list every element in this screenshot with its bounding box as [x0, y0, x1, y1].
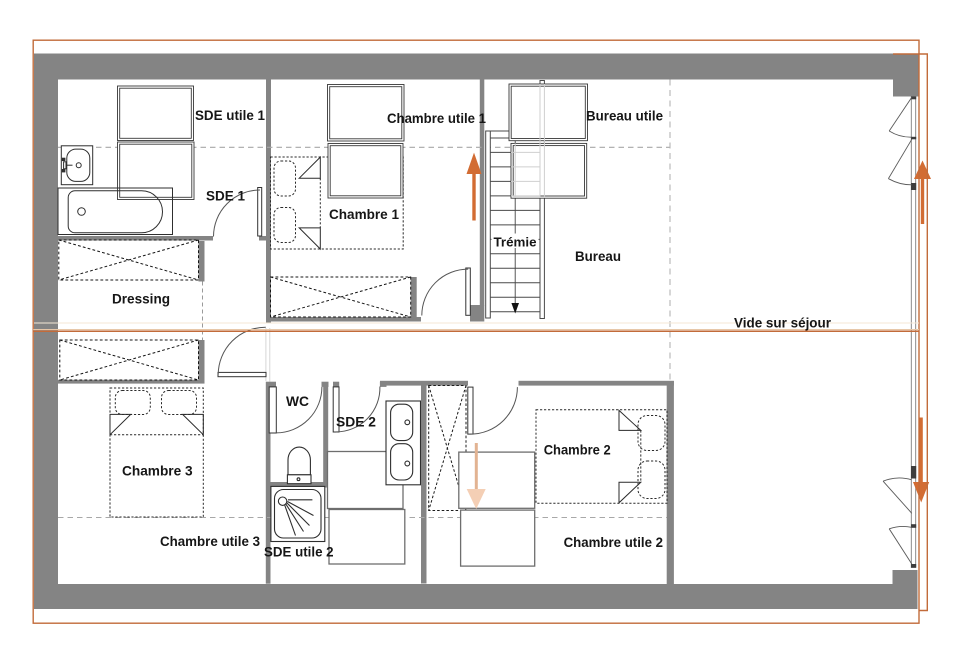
svg-text:Chambre 2: Chambre 2 [544, 443, 611, 458]
svg-text:Chambre 3: Chambre 3 [122, 464, 193, 479]
svg-text:SDE 1: SDE 1 [206, 189, 245, 204]
svg-text:Chambre 1: Chambre 1 [329, 207, 399, 222]
svg-text:Bureau utile: Bureau utile [586, 109, 663, 124]
svg-text:SDE 2: SDE 2 [336, 415, 376, 430]
svg-text:Chambre utile 3: Chambre utile 3 [160, 534, 260, 549]
svg-text:Trémie: Trémie [494, 235, 537, 250]
svg-text:SDE utile 1: SDE utile 1 [195, 108, 265, 123]
svg-text:SDE utile 2: SDE utile 2 [264, 545, 334, 560]
svg-text:Chambre utile 1: Chambre utile 1 [387, 111, 486, 126]
svg-text:Bureau: Bureau [575, 249, 621, 264]
svg-text:Vide sur séjour: Vide sur séjour [734, 316, 832, 331]
svg-text:WC: WC [286, 394, 309, 409]
svg-text:Dressing: Dressing [112, 292, 170, 307]
svg-text:Chambre utile 2: Chambre utile 2 [564, 535, 664, 550]
